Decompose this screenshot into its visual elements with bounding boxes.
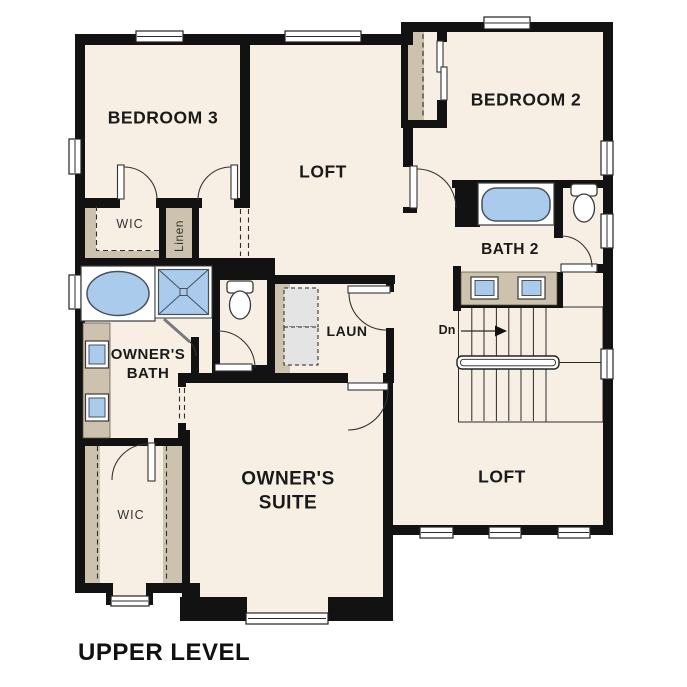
owners-bath-line1: OWNER'S (111, 345, 186, 364)
wic-lower-shelving-right (163, 443, 182, 583)
toilet (571, 184, 597, 222)
floor-plan-page: BEDROOM 3 LOFT BEDROOM 2 WIC Linen BATH … (0, 0, 687, 687)
room-label-wic-upper: WIC (116, 217, 143, 231)
washer (284, 288, 318, 327)
owners-suite-line1: OWNER'S (241, 468, 335, 492)
dryer (284, 327, 318, 365)
room-label-bedroom2: BEDROOM 2 (471, 90, 581, 111)
window (601, 349, 613, 379)
window (420, 527, 453, 538)
window (558, 527, 590, 538)
room-label-bath2: BATH 2 (481, 241, 539, 259)
window (489, 527, 521, 538)
window (484, 17, 530, 29)
floor-plan-drawing (0, 0, 687, 687)
room-label-owners-bath: OWNER'S BATH (111, 345, 186, 383)
shower (155, 266, 212, 318)
owners-suite-line2: SUITE (241, 491, 335, 515)
bay-window-wic (106, 583, 153, 606)
owners-vanity (83, 323, 110, 438)
toilet (227, 281, 253, 319)
window (136, 31, 183, 42)
window (69, 275, 81, 309)
room-label-linen: Linen (172, 220, 186, 252)
plan-title: UPPER LEVEL (78, 639, 250, 667)
stairs-direction-label: Dn (439, 323, 456, 337)
stair-railing (457, 356, 559, 369)
owners-bathtub (87, 272, 149, 316)
owners-bath-line2: BATH (111, 364, 186, 383)
bath2-vanity (461, 272, 557, 305)
window (69, 139, 81, 174)
shower-drain (180, 289, 187, 296)
sink (518, 277, 545, 299)
bay-window-owners-suite (242, 597, 333, 624)
sink (86, 341, 109, 368)
bath2-tub (478, 183, 554, 225)
room-label-wic-lower: WIC (117, 508, 144, 522)
room-label-loft-lower: LOFT (478, 467, 526, 488)
sink (471, 277, 498, 299)
bedroom2-closet (408, 32, 424, 120)
room-label-loft-upper: LOFT (299, 162, 347, 183)
sink (86, 394, 109, 421)
room-label-laundry: LAUN (327, 323, 368, 339)
window (601, 141, 613, 175)
window (285, 31, 361, 42)
room-label-owners-suite: OWNER'S SUITE (241, 468, 335, 515)
window (601, 214, 613, 248)
room-label-bedroom3: BEDROOM 3 (108, 108, 218, 129)
